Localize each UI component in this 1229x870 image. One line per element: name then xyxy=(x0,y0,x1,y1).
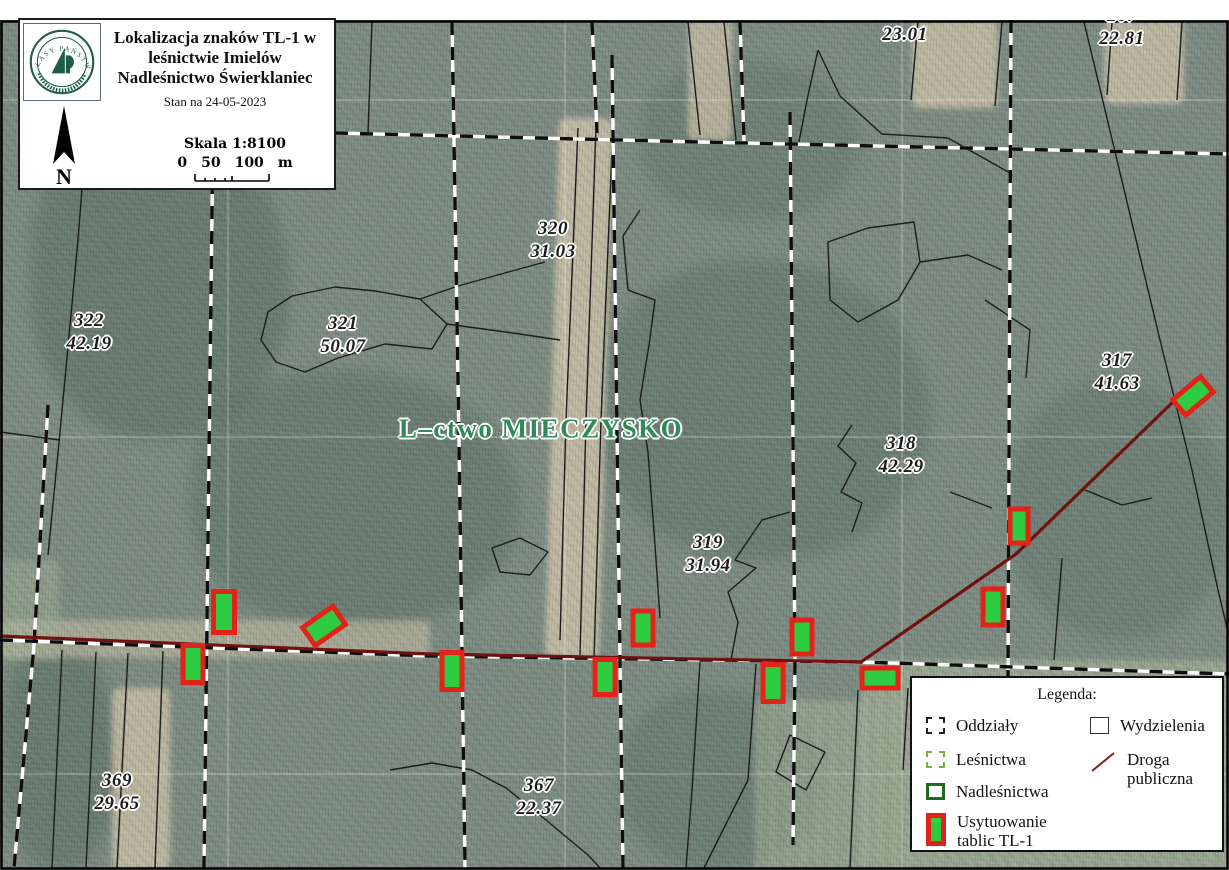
compartment-label: 36722.37 xyxy=(516,774,561,820)
legend-item-label: Wydzielenia xyxy=(1120,716,1205,735)
scale-label: Skala 1:8100 xyxy=(150,136,320,152)
compartment-label: 32031.03 xyxy=(530,217,575,263)
status-date: Stan na 24-05-2023 xyxy=(98,94,332,110)
compartment-label: 26623.01 xyxy=(882,20,927,46)
map-sheet: 26623.0126722.8132242.1932150.0732031.03… xyxy=(0,0,1229,870)
legend-item-tl1: Usytuowanie tablic TL-1 xyxy=(926,812,1069,850)
compartment-label: 31842.29 xyxy=(878,432,923,478)
legend-item-label: Leśnictwa xyxy=(956,750,1026,769)
compartment-label: 26722.81 xyxy=(1099,20,1144,50)
compartment-label: 32150.07 xyxy=(320,312,365,358)
legend-item-label: Droga publiczna xyxy=(1127,750,1217,788)
scale-block: Skala 1:8100 0 50 100 m xyxy=(150,136,320,189)
legend-item-label: Usytuowanie tablic TL-1 xyxy=(957,812,1069,850)
forestry-area-label: L–ctwo MIECZYSKO xyxy=(399,414,683,445)
title-line-2: leśnictwie Imielów xyxy=(98,48,332,68)
lasy-panstwowe-logo: LASY PAŃSTWOWE xyxy=(27,27,97,97)
legend-item-nadlesnictwa: Nadleśnictwa xyxy=(926,782,1049,801)
dashed-square-icon xyxy=(926,717,945,734)
scale-tick-0: 0 xyxy=(177,155,187,171)
north-label: N xyxy=(56,164,72,188)
map-legend: Legenda: Oddziały Leśnictwa Nadleśnictwa… xyxy=(910,676,1224,852)
logo-box: LASY PAŃSTWOWE xyxy=(23,23,101,101)
compartment-label: 36929.65 xyxy=(94,769,139,815)
scale-tick-labels: 0 50 100 m xyxy=(150,155,320,171)
title-line-3: Nadleśnictwo Świerklaniec xyxy=(98,68,332,88)
legend-item-droga: Droga publiczna xyxy=(1090,750,1217,788)
legend-item-oddzialy: Oddziały xyxy=(926,716,1018,735)
compartment-label: 31931.94 xyxy=(685,531,730,577)
map-title: Lokalizacja znaków TL-1 w leśnictwie Imi… xyxy=(98,28,332,88)
scale-unit: m xyxy=(278,155,293,171)
legend-title: Legenda: xyxy=(912,686,1222,704)
compartment-label: 31741.63 xyxy=(1094,349,1139,395)
legend-item-lesnictwa: Leśnictwa xyxy=(926,750,1026,769)
legend-item-label: Nadleśnictwa xyxy=(956,782,1049,801)
tl1-marker-icon xyxy=(926,813,946,846)
scale-tick-100: 100 xyxy=(235,155,264,171)
north-indicator: N xyxy=(44,104,84,188)
map-title-panel: LASY PAŃSTWOWE Lokalizacja znaków TL-1 w… xyxy=(18,18,336,190)
legend-item-wydzielenia: Wydzielenia xyxy=(1090,716,1205,735)
north-arrow-icon: N xyxy=(44,104,84,188)
compartment-label: 32242.19 xyxy=(66,309,111,355)
green-dashed-square-icon xyxy=(926,751,945,768)
title-line-1: Lokalizacja znaków TL-1 w xyxy=(98,28,332,48)
green-square-icon xyxy=(926,783,945,800)
scale-bar xyxy=(165,172,305,184)
scale-tick-50: 50 xyxy=(201,155,220,171)
square-outline-icon xyxy=(1090,717,1109,734)
legend-item-label: Oddziały xyxy=(956,716,1018,735)
road-line-icon xyxy=(1090,751,1116,773)
